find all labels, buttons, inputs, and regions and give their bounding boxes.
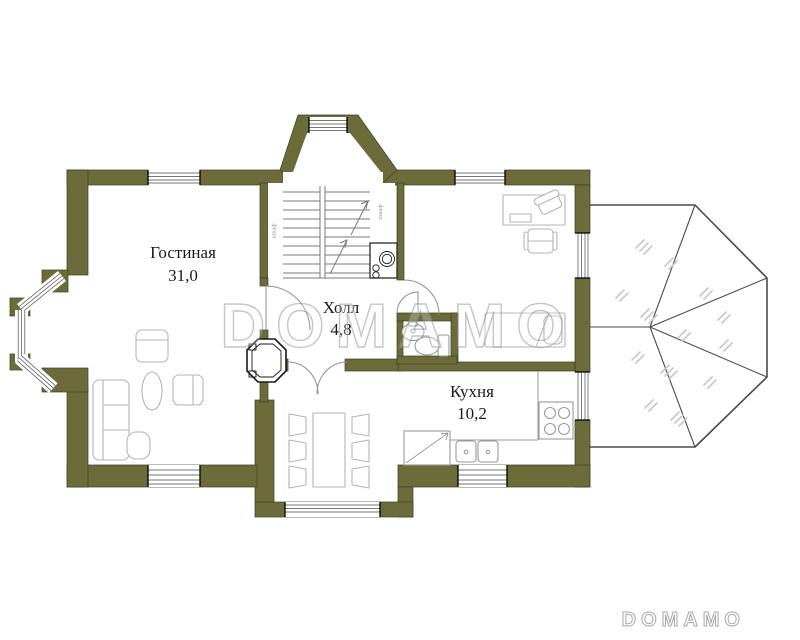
chair-icon: [352, 414, 369, 436]
window: [455, 170, 505, 185]
furniture-living: [93, 330, 203, 460]
desk-icon: [503, 189, 565, 225]
closet-right-label: шкаф: [377, 204, 384, 219]
room-area-living: 31,0: [168, 266, 198, 285]
room-label-living: Гостиная: [150, 243, 216, 262]
sofa-icon: [93, 380, 150, 460]
window: [148, 170, 200, 185]
room-label-kitchen: Кухня: [450, 382, 494, 401]
window: [575, 233, 590, 278]
armchair-icon: [173, 375, 203, 405]
kitchen-sink-icon: [456, 441, 498, 462]
chair-icon: [289, 414, 306, 436]
watermark-center: DOMAMO: [220, 292, 575, 361]
furniture-dining: [289, 413, 369, 488]
window: [575, 372, 590, 420]
door-arc: [288, 362, 347, 394]
floor-plan-svg: шкаф шкаф: [0, 0, 800, 640]
office-chair-icon: [524, 229, 557, 253]
coffee-table-icon: [142, 372, 162, 410]
chair-icon: [289, 440, 306, 462]
boiler-icon: [370, 243, 397, 278]
roof-outline: [590, 205, 767, 447]
window: [309, 117, 347, 133]
closet-left-label: шкаф: [271, 223, 278, 238]
chair-icon: [289, 466, 306, 488]
window: [285, 502, 380, 517]
watermark-corner: DOMAMO: [622, 609, 745, 631]
chair-icon: [352, 440, 369, 462]
dining-table-icon: [313, 413, 345, 487]
roof-group: [590, 205, 767, 447]
room-area-kitchen: 10,2: [457, 404, 487, 423]
stove-icon: [539, 402, 573, 439]
window: [148, 465, 200, 487]
fridge-icon: [404, 431, 450, 465]
window: [458, 465, 507, 487]
chair-icon: [352, 466, 369, 488]
armchair-icon: [136, 330, 168, 362]
